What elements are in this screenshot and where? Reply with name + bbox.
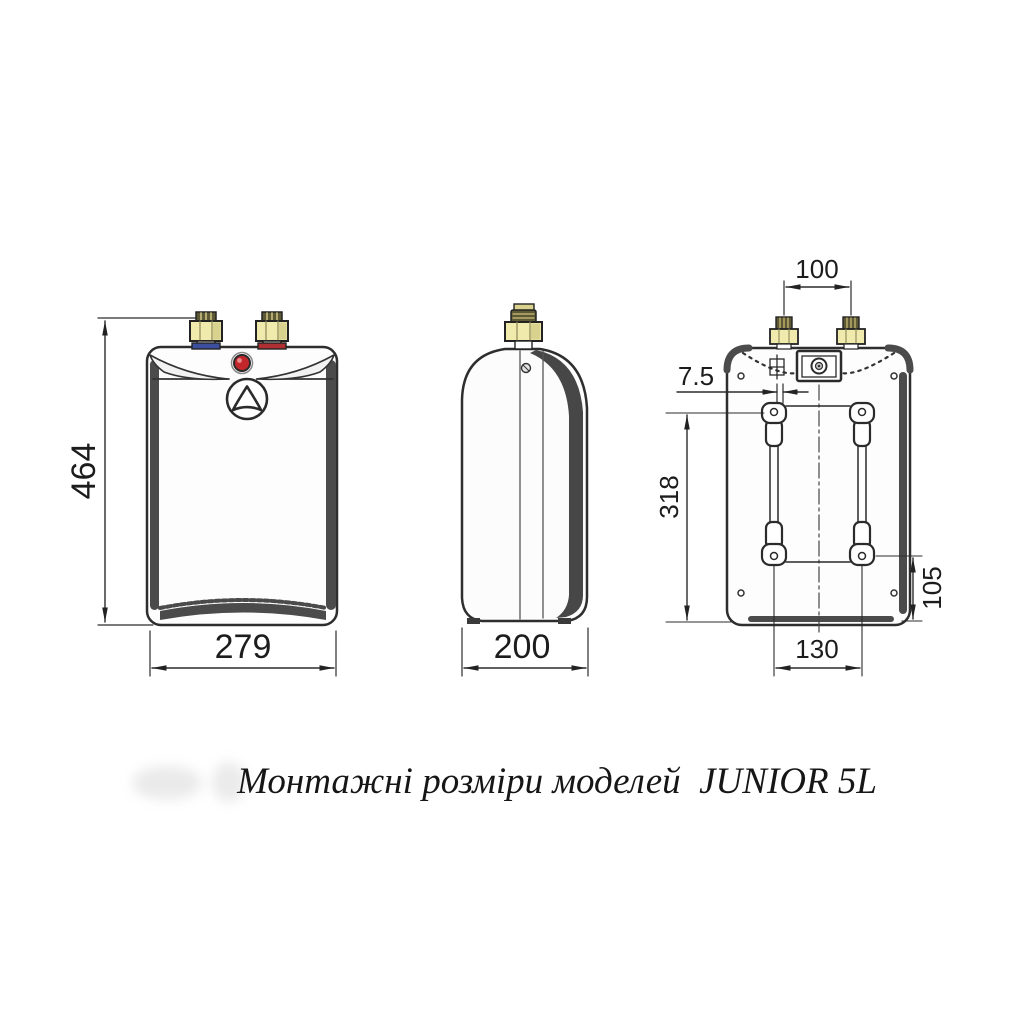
- back-fitting-left: [770, 317, 798, 349]
- hot-band: [258, 343, 286, 349]
- dim-overall-height-label: 464: [65, 443, 103, 500]
- side-screw-icon: [522, 364, 531, 373]
- dim-mount-height-label: 318: [654, 475, 684, 518]
- dim-pipe-spacing-label: 100: [795, 254, 838, 284]
- brand-logo-icon: [227, 379, 267, 419]
- dim-mount-spacing-label: 130: [795, 634, 838, 664]
- back-fitting-right: [837, 317, 865, 349]
- back-right-shade: [899, 372, 907, 614]
- dim-overall-width-label: 279: [215, 628, 272, 666]
- drawing-caption: Монтажні розміри моделей JUNIOR 5L: [90, 760, 1024, 803]
- heater-diagram: 464 279: [0, 0, 1024, 1024]
- ground-icon: [770, 355, 784, 379]
- junction-box: [797, 351, 841, 381]
- front-left-shade: [150, 360, 159, 610]
- side-foot-back: [558, 618, 571, 624]
- installation-drawing: 464 279: [0, 0, 1024, 1024]
- side-view: 200: [462, 304, 588, 676]
- power-indicator-light-icon: [232, 353, 253, 374]
- hot-outlet-fitting: [256, 312, 288, 349]
- cold-band: [192, 343, 220, 349]
- back-view: 100 7.5 318 105 130: [654, 254, 947, 676]
- side-top-fitting: [505, 304, 542, 349]
- dim-pipe-spacing: [784, 281, 851, 315]
- dim-overall-depth-label: 200: [494, 628, 551, 666]
- front-right-shade: [326, 360, 336, 610]
- dim-slot-offset-label: 7.5: [678, 361, 714, 391]
- front-view: 464 279: [65, 312, 337, 676]
- side-foot-front: [467, 618, 480, 624]
- dim-mount-bottom-offset-label: 105: [917, 566, 947, 609]
- back-bottom-shade: [748, 616, 894, 622]
